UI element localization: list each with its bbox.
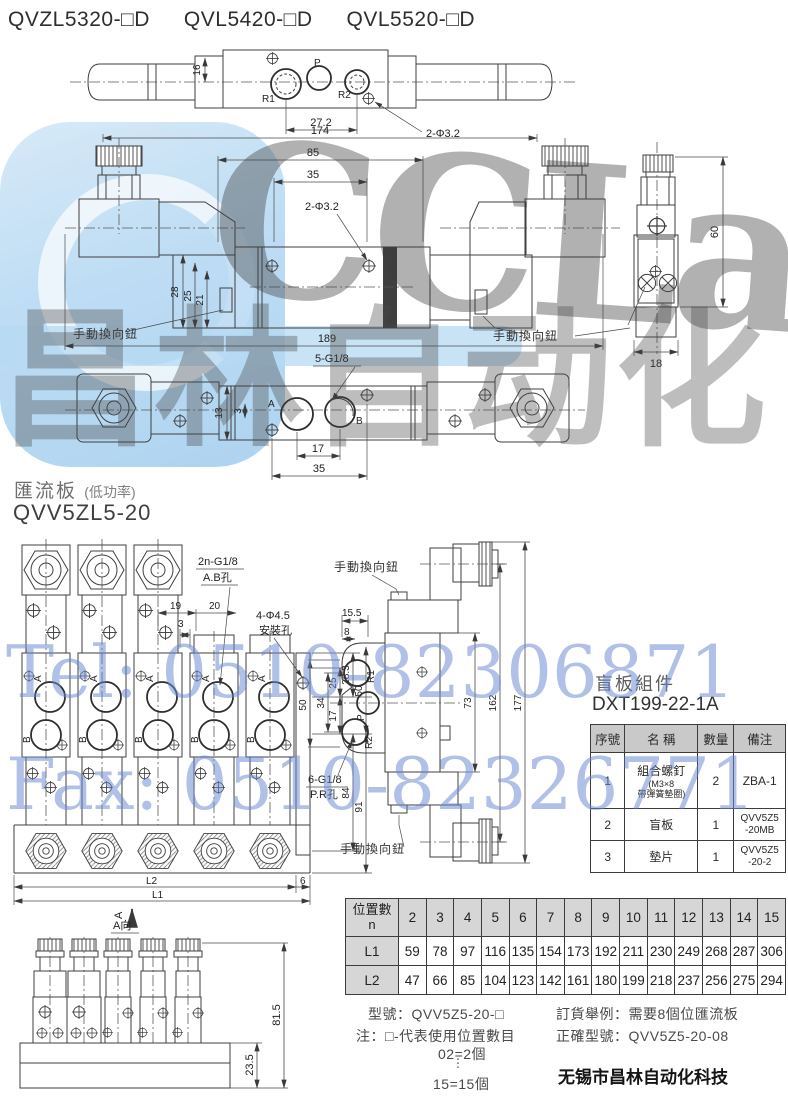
l2-val: 294 <box>758 966 786 995</box>
order-example: 訂貨舉例：需要8個位匯流板 <box>556 1004 738 1024</box>
dim-28: 28 <box>170 286 181 298</box>
port-r2-label: R2 <box>338 90 351 101</box>
dim-16: 16 <box>192 64 203 76</box>
dim-174: 174 <box>311 125 329 137</box>
manifold-plates: A B A B <box>14 653 310 873</box>
dim-189: 189 <box>318 333 336 345</box>
l2-val: 275 <box>730 966 758 995</box>
a-view-dimensions: 81.5 23.5 <box>202 943 288 1088</box>
side-port-r2: R2 <box>364 736 375 749</box>
n-col: 11 <box>647 899 675 937</box>
dim-3-manifold: 3 <box>178 619 184 630</box>
n-col: 14 <box>730 899 758 937</box>
cell-remark: QVV5Z5-20MB <box>734 809 786 841</box>
side-port-p: P <box>356 714 367 721</box>
dim-l1: L1 <box>152 890 164 901</box>
mount-sub: 安裝孔 <box>259 623 292 637</box>
bottom-view-dimensions: 5-G1/8 13 3 17 35 <box>214 353 367 480</box>
dim-60: 60 <box>709 226 721 238</box>
port-b-2: B <box>78 736 89 743</box>
l1-val: 287 <box>730 937 758 966</box>
a-view-label: A向 <box>113 918 131 932</box>
bottom-view-left-end <box>77 374 219 442</box>
l2-val: 104 <box>481 966 509 995</box>
bottom-view-right-end <box>427 374 569 442</box>
dim-177: 177 <box>513 694 524 711</box>
n-col: 3 <box>426 899 454 937</box>
manual-knob-top: 手動換向鈕 <box>334 559 399 574</box>
l2-val: 123 <box>509 966 537 995</box>
n-col: 8 <box>564 899 592 937</box>
n-col: 7 <box>537 899 565 937</box>
side-view-dimensions: 60 18 <box>634 157 728 370</box>
dim-35-bottom: 35 <box>313 463 325 475</box>
position-table: 位置數n 2 3 4 5 6 7 8 9 10 11 12 13 14 15 L… <box>345 898 786 995</box>
thread-2n-g18-sub: A.B孔 <box>203 571 232 584</box>
port-p-label: P <box>314 58 321 69</box>
table-row: 1 組合螺釘(M3×8帶彈簧墊圈) 2 ZBA-1 <box>591 753 786 809</box>
dim-21: 21 <box>195 294 206 306</box>
dim-17: 17 <box>312 443 324 455</box>
cell-remark-1: QVV5Z5 <box>735 813 784 825</box>
port-b-1: B <box>22 736 33 743</box>
blind-plate-title: 盲板組件 <box>595 670 675 696</box>
cell-remark-1: QVV5Z5 <box>735 845 784 857</box>
cell-name-sub2: 帶彈簧墊圈) <box>626 789 696 799</box>
section-title-text: 匯流板 <box>14 481 77 502</box>
dim-162: 162 <box>488 694 499 711</box>
l1-val: 78 <box>426 937 454 966</box>
thread-5-g18: 5-G1/8 <box>315 353 349 365</box>
port-r1-label: R1 <box>262 94 275 105</box>
port-b-3: B <box>134 736 145 743</box>
l2-val: 142 <box>537 966 565 995</box>
port-a-4: A <box>201 675 212 682</box>
position-label-2: n <box>368 917 375 932</box>
n-col: 15 <box>758 899 786 937</box>
n-col: 4 <box>454 899 482 937</box>
cell-qty: 2 <box>698 753 734 809</box>
l2-val: 85 <box>454 966 482 995</box>
l1-val: 173 <box>564 937 592 966</box>
n-col: 13 <box>703 899 731 937</box>
l1-val: 211 <box>620 937 648 966</box>
dim-73: 73 <box>463 697 474 709</box>
position-label-1: 位置數 <box>352 902 391 917</box>
l1-val: 306 <box>758 937 786 966</box>
datasheet-page: QVZL5320-□DQVL5420-□DQVL5520-□D P R1 R2 <box>0 0 788 1099</box>
side-port-r1: R1 <box>366 670 377 683</box>
front-view-right-coil <box>440 138 620 328</box>
bottom-port-b: B <box>356 416 363 427</box>
l1-val: 97 <box>454 937 482 966</box>
manifold-side-annotations: 手動換向鈕 15.5 8 50 34 73 162 177 6-G1/8 P.R… <box>298 542 530 863</box>
l1-val: 135 <box>509 937 537 966</box>
dim-3: 3 <box>233 408 244 414</box>
dim-18: 18 <box>650 358 662 370</box>
bottom-port-a: A <box>268 399 275 410</box>
l1-val: 230 <box>647 937 675 966</box>
correct-model: 正確型號：QVV5Z5-20-08 <box>556 1026 729 1046</box>
cell-name: 組合螺釘(M3×8帶彈簧墊圈) <box>625 753 698 809</box>
cell-name-main: 組合螺釘 <box>637 764 685 778</box>
n-col: 2 <box>399 899 427 937</box>
blind-plate-table: 序號 名 稱 數量 備注 1 組合螺釘(M3×8帶彈簧墊圈) 2 ZBA-1 2… <box>590 724 786 873</box>
col-name: 名 稱 <box>625 725 698 753</box>
drawing-bottom-view: A B 5-G1/8 13 3 17 35 <box>65 348 625 490</box>
mount-4-phi45: 4-Φ4.5 <box>256 610 290 622</box>
l2-val: 66 <box>426 966 454 995</box>
cell-qty: 1 <box>698 809 734 841</box>
drawing-front-view: 174 85 35 2-Φ3.2 28 25 21 189 手動換向鈕 手動換向… <box>55 122 630 364</box>
n-col: 12 <box>675 899 703 937</box>
top-view-body: P R1 R2 <box>223 50 388 108</box>
table-row: 2 盲板 1 QVV5Z5-20MB <box>591 809 786 841</box>
blind-plate-part-no: DXT199-22-1A <box>592 694 719 716</box>
dim-13: 13 <box>214 407 225 419</box>
thread-6-g18: 6-G1/8 <box>308 774 342 786</box>
l1-label: L1 <box>346 937 399 966</box>
dim-50-side: 50 <box>298 699 309 711</box>
cell-name: 墊片 <box>625 841 698 873</box>
table-header-row: 序號 名 稱 數量 備注 <box>591 725 786 753</box>
manual-knob-bottom: 手動換向鈕 <box>340 841 405 856</box>
l1-row: L1 59 78 97 116 135 154 173 192 211 230 … <box>346 937 786 966</box>
l2-val: 47 <box>399 966 427 995</box>
company-name: 无锡市昌林自动化科技 <box>558 1063 728 1088</box>
position-label: 位置數n <box>346 899 399 937</box>
n-col: 5 <box>481 899 509 937</box>
manual-knob-label-left: 手動換向鈕 <box>73 326 138 341</box>
ellipsis-dots: ⋮ <box>452 1056 465 1070</box>
front-view-body <box>235 247 470 328</box>
port-a-5: A <box>257 675 268 682</box>
l2-label: L2 <box>346 966 399 995</box>
n-col: 6 <box>509 899 537 937</box>
cell-remark: ZBA-1 <box>734 753 786 809</box>
example-end: 15=15個 <box>433 1074 489 1094</box>
n-col: 9 <box>592 899 620 937</box>
title-models: QVZL5320-□DQVL5420-□DQVL5520-□D <box>8 8 509 32</box>
cell-no: 2 <box>591 809 625 841</box>
l2-val: 256 <box>703 966 731 995</box>
dim-15-5: 15.5 <box>342 608 362 619</box>
dim-23-5: 23.5 <box>244 1054 256 1075</box>
cell-remark-2: -20-2 <box>735 857 784 869</box>
position-table-header: 位置數n 2 3 4 5 6 7 8 9 10 11 12 13 14 15 <box>346 899 786 937</box>
model-name-1: QVZL5320-□D <box>8 8 150 31</box>
l1-val: 249 <box>675 937 703 966</box>
port-a-3: A <box>145 675 156 682</box>
section-title: 匯流板 (低功率) <box>14 476 136 503</box>
l1-val: 192 <box>592 937 620 966</box>
model-name-2: QVL5420-□D <box>184 8 313 31</box>
dim-25: 25 <box>183 290 194 302</box>
l2-val: 218 <box>647 966 675 995</box>
manual-knob-label-right: 手動換向鈕 <box>493 328 558 343</box>
thread-2n-g18: 2n-G1/8 <box>198 556 238 568</box>
dim-8: 8 <box>344 627 350 638</box>
l1-val: 59 <box>399 937 427 966</box>
bottom-view-body: A B <box>219 386 427 440</box>
manifold-side-body: R1 P R2 <box>330 542 510 863</box>
n-col: 10 <box>620 899 648 937</box>
port-b-4: B <box>190 736 201 743</box>
col-qty: 數量 <box>698 725 734 753</box>
l1-val: 154 <box>537 937 565 966</box>
col-no: 序號 <box>591 725 625 753</box>
l2-row: L2 47 66 85 104 123 142 161 180 199 218 … <box>346 966 786 995</box>
drawing-side-view: 60 18 <box>628 122 788 370</box>
l1-val: 268 <box>703 937 731 966</box>
cell-qty: 1 <box>698 841 734 873</box>
cell-name: 盲板 <box>625 809 698 841</box>
cell-name-sub1: (M3×8 <box>626 779 696 789</box>
dim-85: 85 <box>307 147 319 159</box>
thread-6-g18-sub: P.R孔 <box>310 788 338 801</box>
port-a-1: A <box>33 675 44 682</box>
cell-remark: QVV5Z5-20-2 <box>734 841 786 873</box>
dim-19: 19 <box>170 601 182 612</box>
drawing-manifold-side: R1 P R2 手動換向鈕 <box>300 525 570 875</box>
dim-2-phi-3-2-front: 2-Φ3.2 <box>305 201 339 213</box>
l2-val: 161 <box>564 966 592 995</box>
port-b-5: B <box>246 736 257 743</box>
l1-val: 116 <box>481 937 509 966</box>
l2-val: 237 <box>675 966 703 995</box>
dim-35: 35 <box>307 169 319 181</box>
col-remark: 備注 <box>734 725 786 753</box>
dim-34: 34 <box>316 697 327 709</box>
drawing-a-view: A向 <box>12 915 342 1099</box>
cell-no: 1 <box>591 753 625 809</box>
dim-81-5: 81.5 <box>271 1004 283 1025</box>
dim-6: 6 <box>300 876 306 887</box>
placeholder-note: 注：□-代表使用位置數目 <box>356 1026 515 1046</box>
section-model: QVV5ZL5-20 <box>13 500 151 526</box>
model-name-3: QVL5520-□D <box>347 8 476 31</box>
port-a-2: A <box>89 675 100 682</box>
section-subtitle: (低功率) <box>84 484 135 500</box>
l2-val: 199 <box>620 966 648 995</box>
model-note: 型號：QVV5Z5-20-□ <box>368 1004 504 1024</box>
dim-l2: L2 <box>146 876 158 887</box>
cell-no: 3 <box>591 841 625 873</box>
dim-20: 20 <box>209 601 221 612</box>
l2-val: 180 <box>592 966 620 995</box>
cell-remark-2: -20MB <box>735 825 784 837</box>
a-view-valves <box>20 937 230 1088</box>
table-row: 3 墊片 1 QVV5Z5-20-2 <box>591 841 786 873</box>
side-view-valve <box>628 155 678 337</box>
